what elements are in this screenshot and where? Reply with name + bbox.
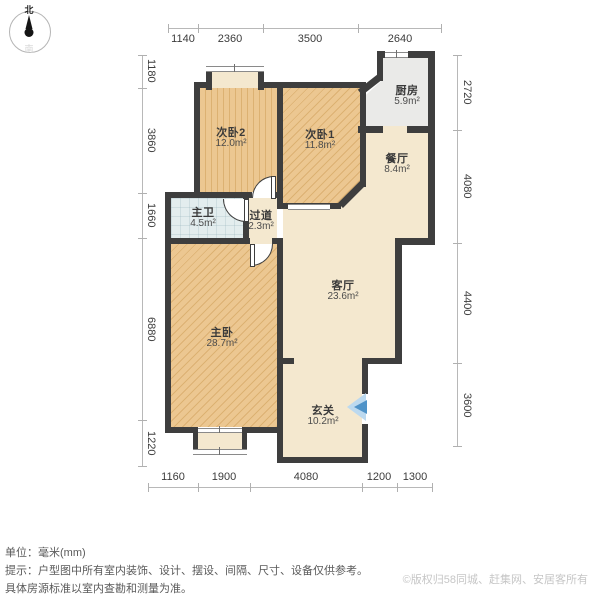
wall-segment bbox=[407, 126, 428, 133]
dim-tick bbox=[453, 55, 462, 56]
dim-label: 4400 bbox=[461, 280, 473, 326]
dim-tick bbox=[397, 483, 398, 492]
master-door-leaf bbox=[250, 244, 255, 267]
dim-label: 6880 bbox=[145, 306, 157, 352]
dim-label: 3860 bbox=[145, 117, 157, 163]
dim-label: 1660 bbox=[145, 192, 157, 238]
dimension-line-bottom bbox=[148, 487, 433, 488]
tip-line-1: 提示：户型图中所有室内装饰、设计、摆设、间隔、尺寸、设备仅供参考。 bbox=[5, 562, 368, 578]
dim-tick bbox=[362, 483, 363, 492]
wall-segment bbox=[283, 82, 366, 88]
wall-segment bbox=[272, 238, 283, 244]
dim-tick bbox=[198, 24, 199, 33]
dining-area: 8.4m² bbox=[367, 164, 427, 175]
bedroom1-window bbox=[288, 204, 330, 210]
dim-tick bbox=[432, 483, 433, 492]
wall-segment bbox=[362, 358, 402, 364]
dim-tick bbox=[138, 238, 147, 239]
unit-note: 单位：毫米(mm) bbox=[5, 544, 86, 560]
compass-needle-icon bbox=[23, 15, 35, 41]
dim-tick bbox=[453, 243, 462, 244]
dim-tick bbox=[168, 24, 169, 33]
dim-label: 1180 bbox=[145, 48, 157, 94]
entry-area: 10.2m² bbox=[293, 416, 353, 427]
bedroom2-area: 12.0m² bbox=[201, 138, 261, 149]
dim-label: 1140 bbox=[160, 33, 206, 45]
wall-segment bbox=[428, 51, 435, 245]
window-tick bbox=[219, 426, 220, 433]
bay-window bbox=[206, 66, 264, 72]
dim-tick bbox=[453, 130, 462, 131]
dimension-line-top bbox=[168, 28, 442, 29]
wall-segment bbox=[242, 427, 283, 433]
bathroom-area: 4.5m² bbox=[173, 218, 233, 229]
bedroom1-area: 11.8m² bbox=[290, 140, 350, 151]
wall-segment bbox=[277, 457, 368, 463]
window-tick bbox=[219, 447, 220, 455]
dim-tick bbox=[148, 483, 149, 492]
wall-segment bbox=[242, 430, 247, 451]
dim-label: 1220 bbox=[145, 420, 157, 466]
dim-tick bbox=[358, 24, 359, 33]
dim-label: 3500 bbox=[287, 33, 333, 45]
dim-tick bbox=[263, 24, 264, 33]
wall-segment bbox=[165, 192, 252, 198]
dim-label: 1300 bbox=[392, 471, 438, 483]
dim-label: 2360 bbox=[207, 33, 253, 45]
window-tick bbox=[234, 64, 235, 72]
bedroom2-door-leaf bbox=[271, 176, 276, 199]
dim-label: 3600 bbox=[461, 382, 473, 428]
master-area: 28.7m² bbox=[192, 338, 252, 349]
hallway-area: 2.3m² bbox=[231, 221, 291, 232]
compass-south-label: 南 bbox=[15, 42, 43, 55]
floor-plan-page: 北 南 bbox=[0, 0, 600, 600]
wall-segment bbox=[165, 238, 250, 244]
wall-segment bbox=[358, 126, 383, 133]
dim-tick bbox=[250, 483, 251, 492]
balcony-window bbox=[193, 449, 247, 455]
kitchen-area: 5.9m² bbox=[377, 96, 437, 107]
wall-segment bbox=[395, 238, 402, 364]
dim-label: 4080 bbox=[461, 163, 473, 209]
wall-segment bbox=[194, 82, 200, 198]
copyright-notice: ©版权归58同城、赶集网、安居客所有 bbox=[403, 571, 588, 587]
wall-segment bbox=[277, 82, 283, 209]
wall-segment bbox=[165, 192, 171, 433]
living-area: 23.6m² bbox=[313, 291, 373, 302]
tip-line-2: 具体房源标准以室内查勘和测量为准。 bbox=[5, 580, 192, 596]
dim-label: 2640 bbox=[377, 33, 423, 45]
dimension-line-left bbox=[142, 55, 143, 467]
dimension-line-right bbox=[457, 55, 458, 447]
dim-tick bbox=[453, 363, 462, 364]
wall-segment bbox=[360, 82, 366, 187]
dim-tick bbox=[198, 483, 199, 492]
dim-label: 4080 bbox=[283, 471, 329, 483]
dim-tick bbox=[441, 24, 442, 33]
wall-segment bbox=[193, 430, 198, 451]
dim-label: 1900 bbox=[201, 471, 247, 483]
dim-label: 2720 bbox=[461, 69, 473, 115]
window-tick bbox=[396, 50, 397, 58]
master-balcony-slider bbox=[198, 428, 242, 433]
dim-tick bbox=[138, 466, 147, 467]
dim-label: 1160 bbox=[150, 471, 196, 483]
wall-segment bbox=[283, 358, 294, 364]
dim-tick bbox=[453, 446, 462, 447]
wall-segment bbox=[362, 358, 368, 394]
